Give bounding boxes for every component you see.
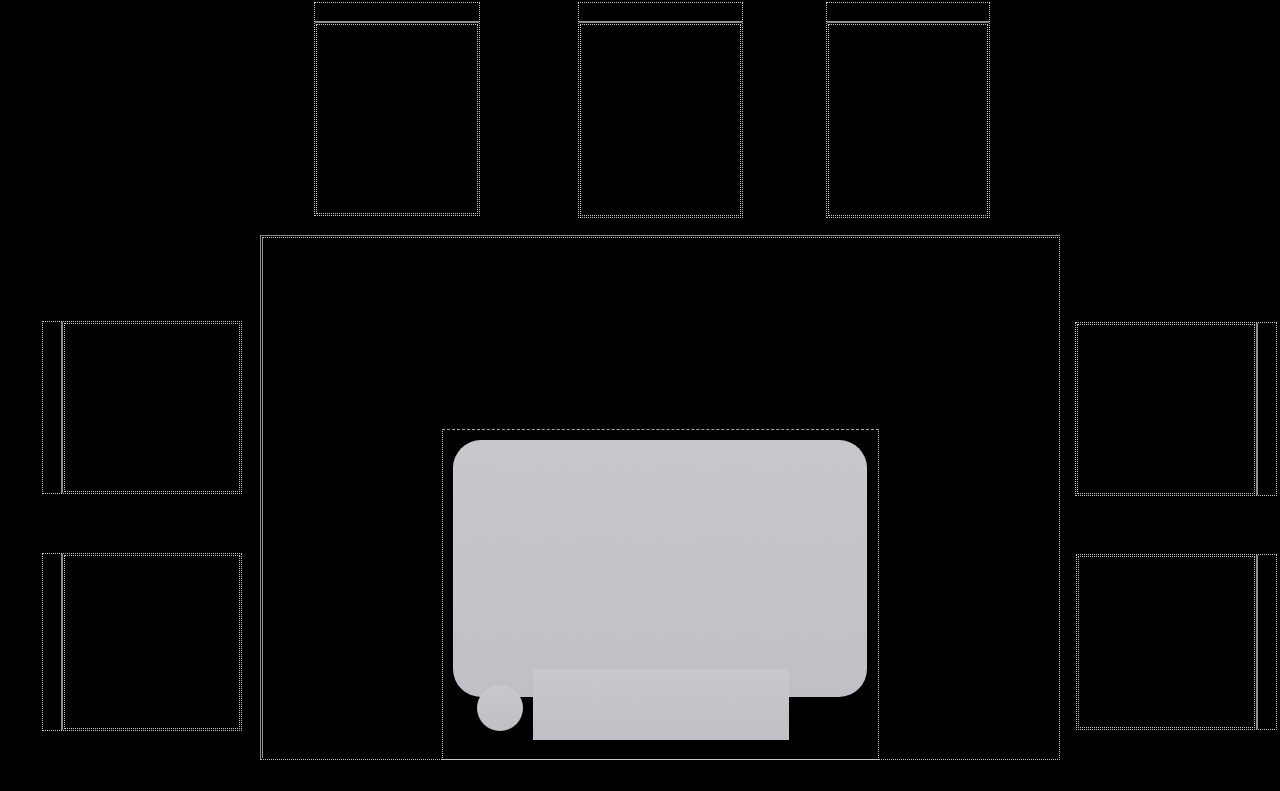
slot-right-2[interactable] bbox=[1076, 554, 1277, 730]
slot-right-1[interactable] bbox=[1075, 322, 1277, 496]
slot-top-1-header bbox=[315, 3, 479, 23]
object-foot bbox=[477, 685, 523, 731]
slot-right-1-header bbox=[1256, 323, 1276, 495]
table-background bbox=[0, 0, 1280, 791]
slot-top-3-header bbox=[827, 3, 989, 23]
slot-top-1-body[interactable] bbox=[316, 24, 478, 214]
slot-top-2-body[interactable] bbox=[580, 24, 741, 216]
slot-left-2[interactable] bbox=[42, 553, 242, 731]
object-base-tab bbox=[533, 669, 789, 740]
slot-right-1-body[interactable] bbox=[1077, 324, 1255, 494]
slot-left-1-body[interactable] bbox=[64, 323, 240, 492]
slot-top-2[interactable] bbox=[578, 2, 743, 218]
slot-left-1-header bbox=[43, 322, 63, 493]
slot-top-3[interactable] bbox=[826, 2, 990, 218]
slot-top-2-header bbox=[579, 3, 742, 23]
slot-left-2-body[interactable] bbox=[64, 555, 240, 729]
slot-right-2-body[interactable] bbox=[1078, 556, 1255, 728]
slot-top-3-body[interactable] bbox=[828, 24, 988, 216]
slot-top-1[interactable] bbox=[314, 2, 480, 216]
slot-right-2-header bbox=[1256, 555, 1276, 729]
slot-left-1[interactable] bbox=[42, 321, 242, 494]
object-silhouette[interactable] bbox=[442, 429, 879, 760]
object-body bbox=[453, 440, 867, 697]
slot-left-2-header bbox=[43, 554, 63, 730]
